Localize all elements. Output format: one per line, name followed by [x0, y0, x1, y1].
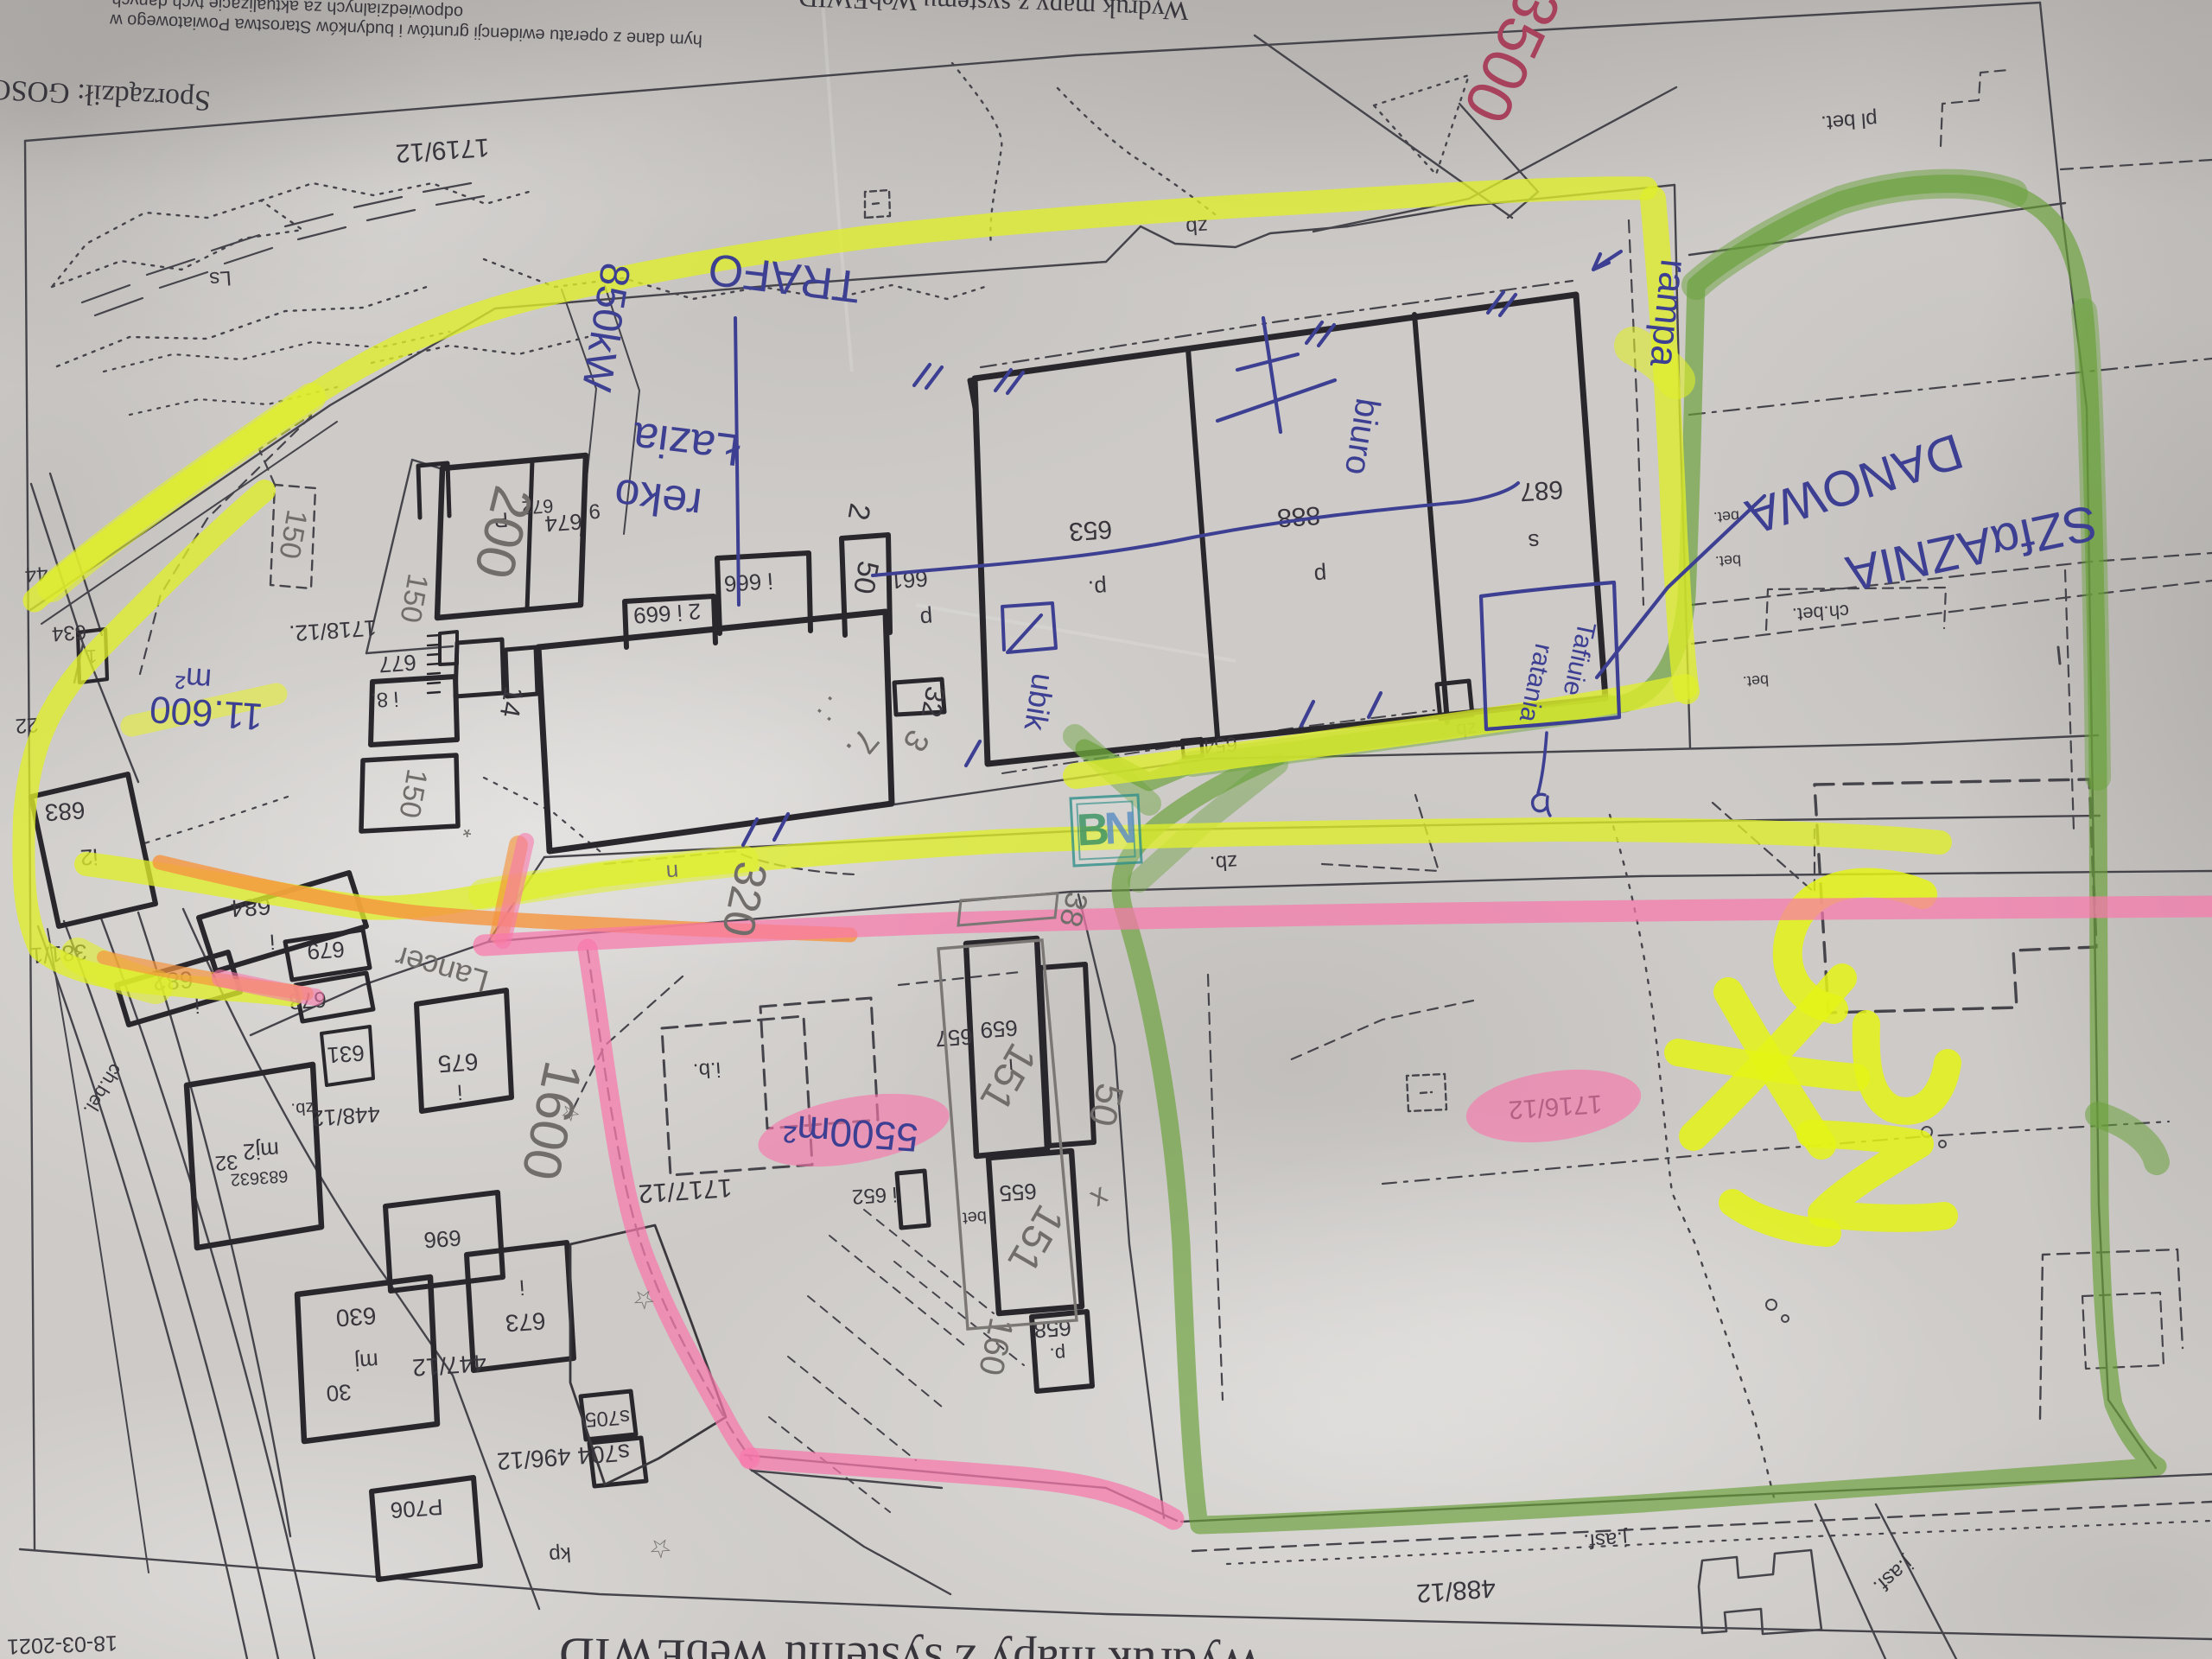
- svg-text:p.: p.: [1049, 1344, 1066, 1366]
- svg-text:bet.: bet.: [1714, 551, 1741, 570]
- svg-text:679: 679: [306, 937, 345, 965]
- svg-text:448/12: 448/12: [310, 1101, 380, 1131]
- svg-text:m²: m²: [174, 660, 213, 698]
- svg-text:ch.bet.: ch.bet.: [1791, 601, 1850, 626]
- svg-text:i 666: i 666: [723, 568, 773, 597]
- svg-text:s: s: [1528, 529, 1541, 556]
- svg-text:653: 653: [1068, 514, 1113, 545]
- svg-text:i 8.: i 8.: [370, 687, 399, 712]
- svg-text:631: 631: [326, 1040, 365, 1069]
- svg-text:630: 630: [335, 1302, 378, 1332]
- svg-text:p.: p.: [1087, 575, 1108, 601]
- svg-text:687: 687: [1519, 474, 1564, 505]
- svg-text:488/12: 488/12: [1415, 1573, 1497, 1607]
- svg-text:p: p: [919, 606, 934, 632]
- svg-text:9: 9: [588, 499, 601, 523]
- svg-text:447/12: 447/12: [411, 1350, 487, 1382]
- svg-text:683: 683: [44, 797, 86, 826]
- svg-text:s705: s705: [584, 1405, 631, 1432]
- svg-text:P706: P706: [390, 1494, 444, 1523]
- svg-text:2 i 669: 2 i 669: [632, 598, 702, 628]
- svg-text:634: 634: [51, 620, 87, 645]
- svg-text:☆: ☆: [632, 1284, 657, 1314]
- svg-text:bet: bet: [962, 1207, 988, 1228]
- svg-text:i.b.: i.b.: [692, 1058, 721, 1083]
- svg-text:N: N: [1103, 803, 1139, 855]
- svg-text:Ls: Ls: [208, 266, 232, 291]
- svg-text:673: 673: [505, 1307, 547, 1337]
- svg-text:zb.: zb.: [290, 1098, 315, 1119]
- svg-text:kp: kp: [548, 1542, 571, 1567]
- svg-text:bet.: bet.: [1742, 671, 1769, 690]
- svg-text:zb.: zb.: [1209, 850, 1238, 875]
- svg-text:reko: reko: [612, 468, 704, 529]
- svg-text:696: 696: [423, 1225, 461, 1254]
- svg-text:18-03-2021: 18-03-2021: [7, 1630, 118, 1658]
- svg-text:5500m²: 5500m²: [782, 1106, 919, 1160]
- svg-text:683632: 683632: [230, 1166, 289, 1189]
- svg-text:p: p: [1313, 563, 1328, 589]
- svg-text:mj2: mj2: [242, 1137, 280, 1166]
- svg-text:658: 658: [1033, 1315, 1071, 1344]
- svg-text:30: 30: [326, 1379, 353, 1407]
- svg-text:☆: ☆: [648, 1533, 673, 1563]
- svg-text:14: 14: [494, 684, 531, 720]
- svg-text:677: 677: [378, 650, 416, 678]
- svg-text:657: 657: [934, 1024, 973, 1052]
- svg-text:32: 32: [916, 684, 952, 720]
- svg-text:i 652: i 652: [851, 1182, 898, 1209]
- svg-text:50: 50: [847, 558, 885, 596]
- svg-text:j.asf.: j.asf.: [1583, 1527, 1629, 1554]
- svg-text:☆: ☆: [559, 1099, 581, 1127]
- svg-text:n: n: [665, 860, 680, 887]
- svg-text:*: *: [461, 817, 472, 843]
- svg-text:675: 675: [437, 1048, 480, 1077]
- svg-text:pl bet.: pl bet.: [1821, 107, 1878, 134]
- svg-text:mj: mj: [353, 1348, 378, 1376]
